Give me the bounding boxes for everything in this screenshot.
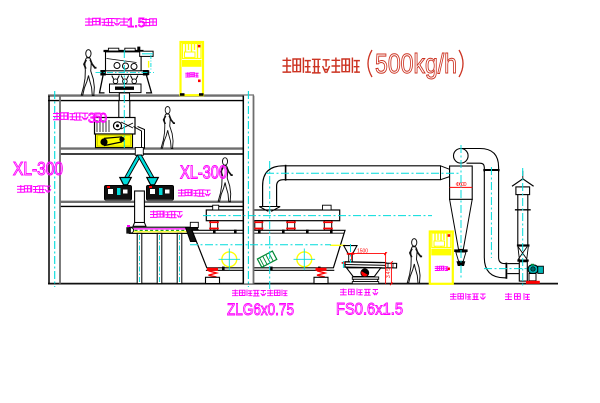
svg-text:345: 345 bbox=[386, 268, 392, 278]
svg-text:XL-300: XL-300 bbox=[13, 159, 63, 179]
svg-text:1500: 1500 bbox=[357, 248, 368, 254]
svg-text:500kg/h: 500kg/h bbox=[375, 48, 457, 79]
svg-text:FS0.6x1.5: FS0.6x1.5 bbox=[336, 300, 403, 319]
svg-text:XL-300: XL-300 bbox=[180, 163, 227, 183]
svg-text:350: 350 bbox=[88, 111, 107, 126]
svg-text:ZLG6x0.75: ZLG6x0.75 bbox=[227, 300, 294, 319]
